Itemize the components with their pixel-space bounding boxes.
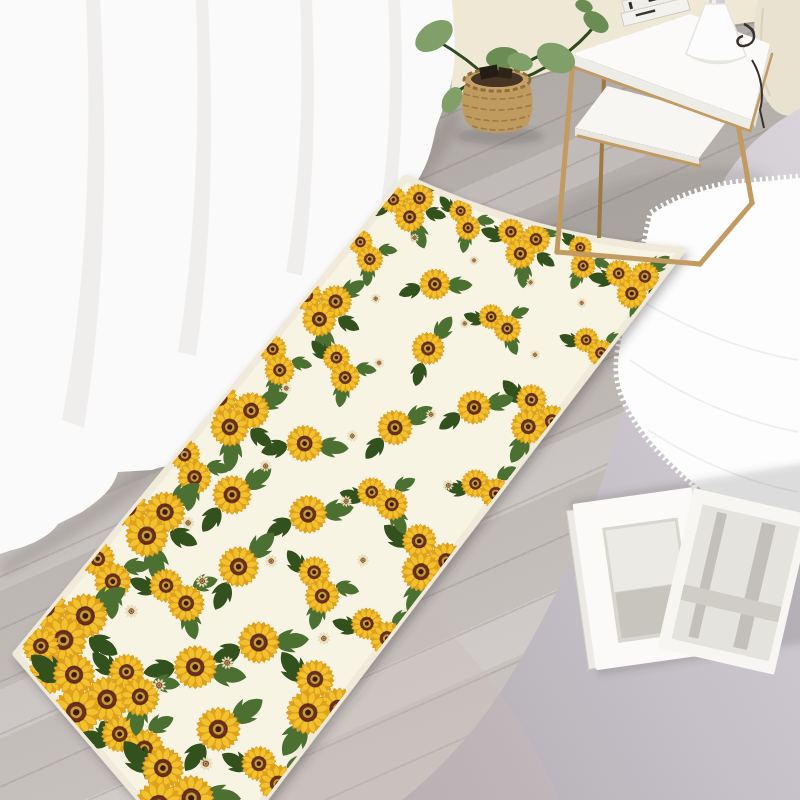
scene-svg bbox=[0, 0, 800, 800]
book-left-photo-top bbox=[606, 521, 684, 592]
photo-stage bbox=[0, 0, 800, 800]
basket-contents bbox=[497, 67, 512, 79]
woven-basket bbox=[462, 65, 533, 133]
